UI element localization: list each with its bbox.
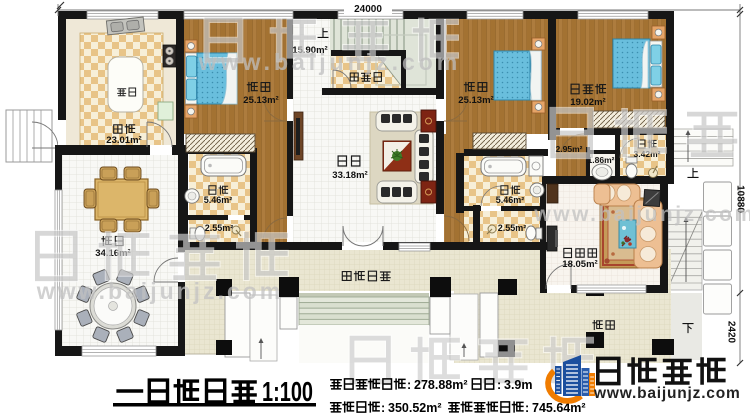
svg-text:25.13m²: 25.13m² (243, 95, 278, 106)
svg-text:18.05m²: 18.05m² (562, 259, 597, 270)
svg-text:www.baijunjz.com: www.baijunjz.com (198, 49, 462, 75)
svg-text:1:100: 1:100 (262, 376, 313, 407)
svg-text:3.9m: 3.9m (504, 378, 533, 392)
svg-text:www.baijunjz.com: www.baijunjz.com (533, 203, 750, 226)
svg-text:24000: 24000 (354, 4, 382, 15)
svg-text:www.baijunjz.com: www.baijunjz.com (593, 385, 741, 402)
svg-text::: : (525, 401, 529, 415)
svg-text:www.baijunjz.com: www.baijunjz.com (36, 278, 284, 304)
svg-text::: : (497, 378, 501, 392)
svg-text:19.02m²: 19.02m² (570, 97, 605, 108)
svg-text:2.55m²: 2.55m² (498, 223, 527, 233)
svg-text::: : (381, 401, 385, 415)
svg-text:23.01m²: 23.01m² (106, 135, 141, 146)
svg-text:33.18m²: 33.18m² (332, 170, 367, 181)
svg-text:2420: 2420 (726, 321, 737, 344)
svg-text:5.46m²: 5.46m² (204, 195, 233, 205)
svg-text:25.13m²: 25.13m² (458, 95, 493, 106)
svg-text:745.64m²: 745.64m² (532, 401, 586, 415)
svg-text:5.46m²: 5.46m² (496, 195, 525, 205)
svg-text:350.52m²: 350.52m² (388, 401, 442, 415)
svg-text:2.55m²: 2.55m² (205, 223, 234, 233)
svg-text::: : (407, 378, 411, 392)
svg-text:278.88m²: 278.88m² (414, 378, 468, 392)
